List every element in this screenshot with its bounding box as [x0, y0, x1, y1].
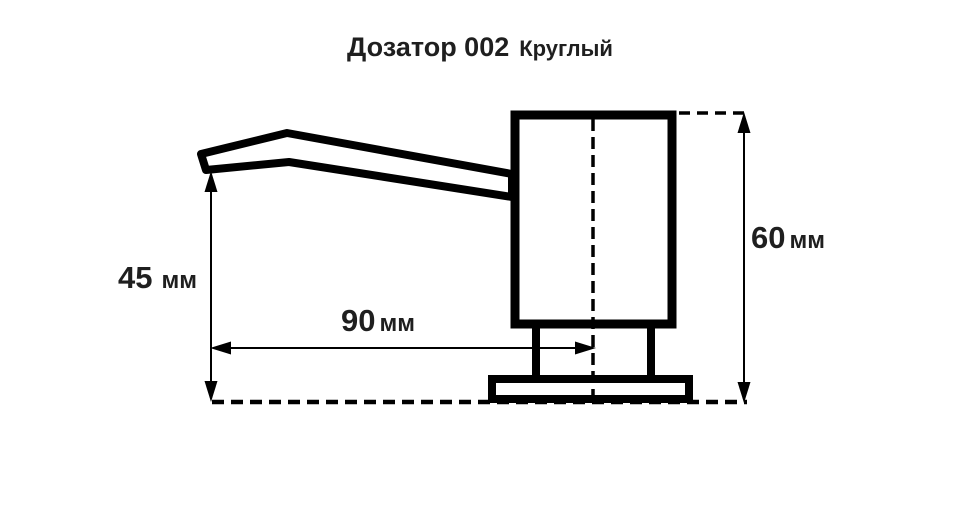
spout-outline: [201, 133, 512, 197]
dim-line-45: [205, 171, 218, 402]
dim-line-60: [738, 112, 751, 403]
dim-60-unit: мм: [789, 229, 825, 253]
dim-45-label: 45 мм: [118, 262, 197, 293]
title-model-text: Дозатор 002: [347, 34, 509, 61]
title-variant-text: Круглый: [519, 38, 613, 60]
dim-60-arrow-down-icon: [738, 382, 751, 403]
dispenser-diagram: [0, 0, 960, 518]
dim-90-value: 90: [341, 305, 375, 336]
neck-outline: [536, 324, 651, 379]
base-flange-outline: [492, 379, 689, 399]
dim-60-arrow-up-icon: [738, 112, 751, 133]
dim-90-arrow-left-icon: [210, 342, 231, 355]
dim-90-label: 90 мм: [341, 305, 415, 336]
dim-90-unit: мм: [379, 312, 415, 336]
dim-60-label: 60 мм: [751, 222, 825, 253]
dim-45-arrow-down-icon: [205, 381, 218, 402]
page-title: Дозатор 002 Круглый: [0, 34, 960, 61]
dim-60-value: 60: [751, 222, 785, 253]
dim-45-arrow-up-icon: [205, 171, 218, 192]
dim-45-unit: мм: [161, 269, 197, 293]
dim-45-value: 45: [118, 262, 152, 293]
technical-drawing-page: Дозатор 002 Круглый 45 мм 90 мм 60 мм: [0, 0, 960, 518]
